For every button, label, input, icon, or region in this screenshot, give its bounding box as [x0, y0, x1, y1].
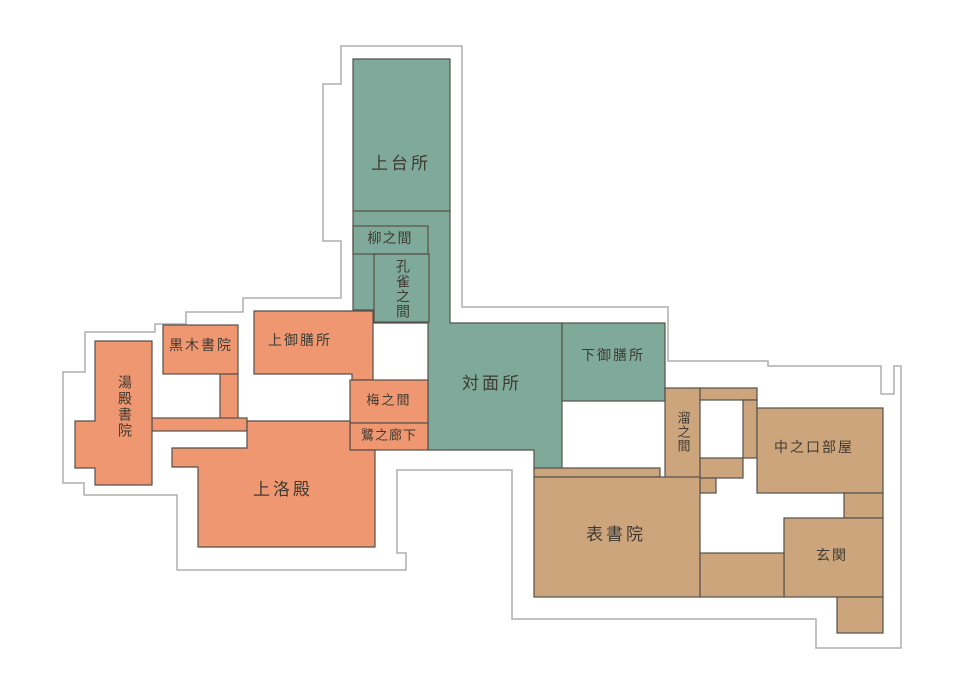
floor-plan: 上台所 柳之間 孔雀之間 対面所 下御膳所 黒木書院 上御膳所 湯殿書院 梅之間…	[0, 0, 972, 685]
tamari-connector-shape	[700, 478, 716, 493]
tamari-right-strip-shape	[743, 400, 757, 458]
label-shimogozensho: 下御膳所	[581, 349, 645, 365]
label-yudonoshoin: 湯殿書院	[115, 375, 131, 439]
genkan-upper-strip-shape	[844, 493, 883, 518]
label-taimenjo: 対面所	[462, 374, 522, 394]
label-nakanokuchibeya: 中之口部屋	[774, 441, 854, 457]
omote-corridor-shape	[534, 468, 660, 477]
label-yanaginoma: 柳之間	[368, 232, 413, 248]
label-kujakunoma: 孔雀之間	[393, 259, 409, 319]
label-kamidaidokoro: 上台所	[371, 154, 431, 174]
omote-east-extension-shape	[700, 553, 784, 597]
label-omoteshoin: 表書院	[586, 525, 646, 545]
label-genkan: 玄関	[816, 549, 848, 565]
tamari-top-strip-shape	[700, 388, 757, 400]
label-kurokishoin: 黒木書院	[169, 339, 233, 355]
floor-plan-canvas	[0, 0, 972, 685]
label-kamigozensho: 上御膳所	[268, 334, 332, 350]
label-tamarinoma: 溜之間	[675, 411, 690, 453]
kuroki-connector-shape	[220, 374, 238, 421]
west-corridor-shape	[152, 418, 247, 431]
label-umenoma: 梅之間	[366, 394, 411, 409]
label-saginoroka: 鷺之廊下	[361, 429, 417, 444]
label-jorakuden: 上洛殿	[253, 480, 313, 500]
genkan-lower-block-shape	[837, 597, 883, 633]
tamari-bottom-strip-shape	[700, 458, 743, 478]
